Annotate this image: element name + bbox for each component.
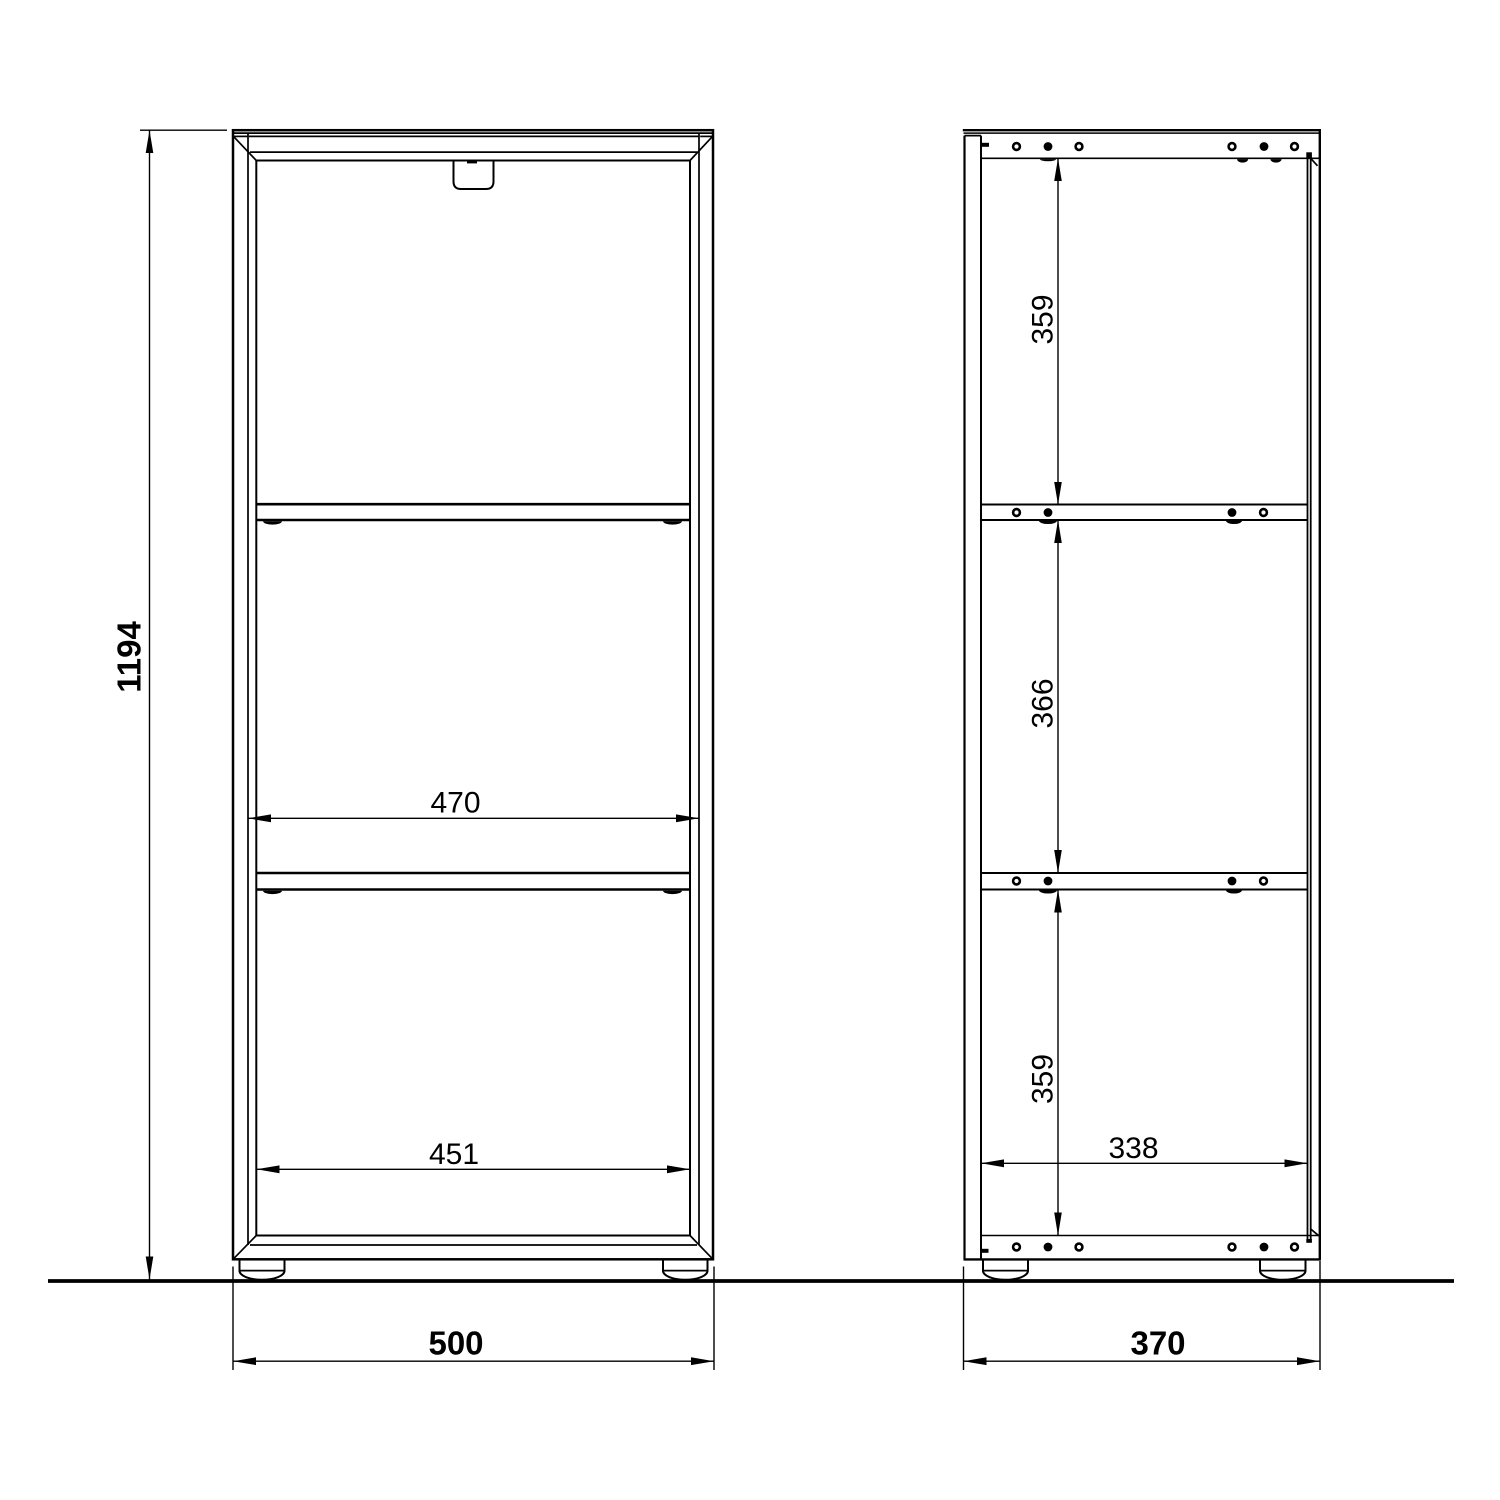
svg-text:500: 500 — [428, 1325, 483, 1362]
svg-text:1194: 1194 — [111, 621, 148, 693]
svg-text:451: 451 — [429, 1138, 479, 1171]
svg-text:366: 366 — [1027, 678, 1060, 728]
svg-text:370: 370 — [1130, 1325, 1185, 1362]
svg-text:359: 359 — [1027, 1054, 1060, 1104]
svg-text:359: 359 — [1027, 294, 1060, 344]
svg-text:470: 470 — [430, 787, 480, 820]
svg-text:338: 338 — [1108, 1132, 1158, 1165]
